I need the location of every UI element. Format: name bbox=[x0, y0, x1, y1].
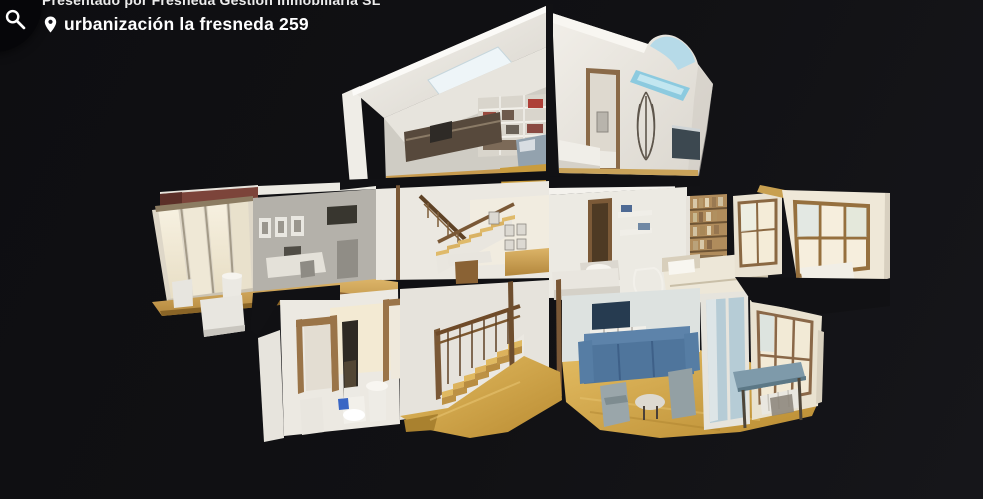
attic-right bbox=[550, 13, 713, 176]
grey-chair-2 bbox=[668, 368, 696, 419]
living-room bbox=[562, 288, 824, 438]
staircase-upper bbox=[376, 181, 549, 284]
presented-by-label: Presentado por Fresneda Gestión Inmobili… bbox=[42, 0, 380, 8]
address-row: urbanización la fresneda 259 bbox=[44, 14, 309, 35]
address-label: urbanización la fresneda 259 bbox=[64, 14, 309, 35]
dollhouse-3d-canvas[interactable] bbox=[0, 0, 983, 499]
staircase-lower bbox=[400, 279, 562, 438]
tv-screen-living bbox=[592, 301, 630, 331]
picture-frames bbox=[259, 216, 304, 238]
matterport-viewer: Presentado por Fresneda Gestión Inmobili… bbox=[0, 0, 983, 499]
blue-bucket bbox=[338, 398, 349, 410]
attic-left bbox=[342, 6, 549, 192]
grey-chair bbox=[600, 382, 630, 427]
tv-screen bbox=[327, 205, 357, 225]
location-pin-icon bbox=[44, 16, 57, 33]
